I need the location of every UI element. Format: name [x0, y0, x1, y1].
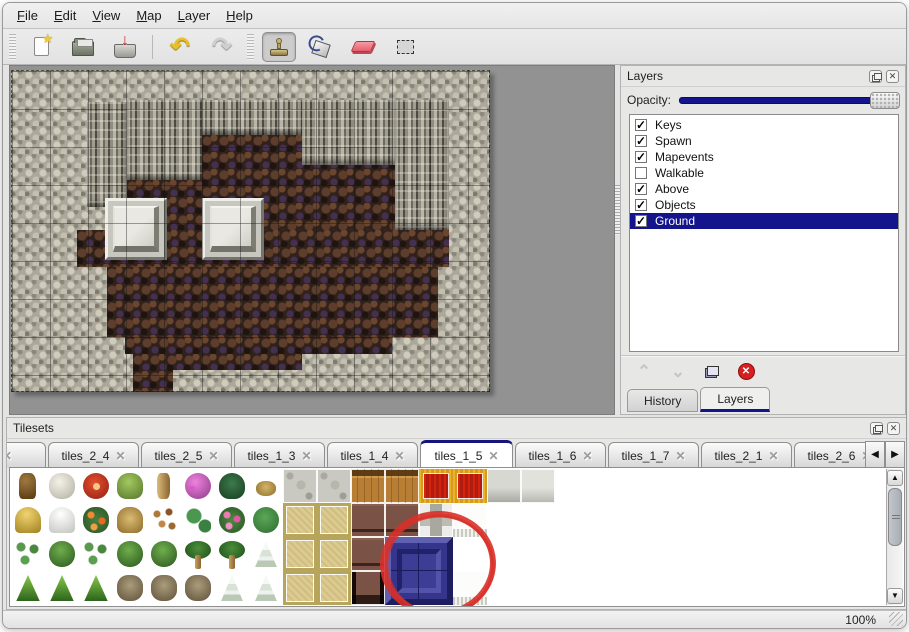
layer-row-walkable[interactable]: Walkable	[630, 165, 898, 181]
bush-sprite-icon	[151, 541, 177, 567]
layer-name: Objects	[655, 198, 696, 212]
tile-sprouts[interactable]	[79, 537, 113, 571]
scrollbar-thumb[interactable]	[888, 488, 902, 546]
layers-dock-titlebar: Layers ✕	[621, 66, 905, 87]
tile-white-fringe[interactable]	[453, 571, 487, 605]
tile-lilypad2[interactable]	[249, 503, 283, 537]
menu-edit[interactable]: Edit	[46, 4, 84, 27]
tile-stone2[interactable]	[317, 469, 351, 503]
sprouts-sprite-icon	[15, 541, 41, 567]
tileset-tab-tiles_2_4[interactable]: tiles_2_4✕	[48, 442, 139, 468]
selection-icon	[397, 40, 414, 54]
tab-close-icon[interactable]: ✕	[582, 449, 592, 463]
opacity-row: Opacity:	[621, 90, 905, 110]
tileset-tab-3[interactable]: 3✕	[7, 442, 46, 468]
tilesets-dock-titlebar: Tilesets ✕	[7, 418, 906, 439]
layers-dock-title: Layers	[627, 69, 663, 83]
tile-khaki[interactable]	[283, 537, 317, 571]
bare-tree-sprite-icon	[185, 575, 211, 601]
stump-sprite-icon	[117, 473, 143, 499]
tile-table[interactable]	[351, 537, 385, 571]
tile-bare-tree[interactable]	[181, 571, 215, 605]
layer-checkbox[interactable]: ✓	[635, 215, 647, 227]
tile-wood[interactable]	[385, 469, 419, 503]
layer-row-mapevents[interactable]: ✓Mapevents	[630, 149, 898, 165]
map-viewport[interactable]	[9, 65, 615, 415]
opacity-label: Opacity:	[627, 93, 671, 107]
layer-name: Walkable	[655, 166, 704, 180]
arrow-up-icon: ▲	[891, 473, 899, 482]
open-button[interactable]	[66, 32, 100, 62]
layer-name: Keys	[655, 118, 682, 132]
undo-button[interactable]: ↶	[163, 32, 197, 62]
new-file-icon: ★	[34, 37, 49, 56]
tile-carpet[interactable]	[453, 469, 487, 503]
bush-sprite-icon	[117, 541, 143, 567]
tile-pine-snow[interactable]	[249, 537, 283, 571]
status-bar: 100%	[3, 610, 906, 628]
tab-close-icon[interactable]: ✕	[301, 449, 311, 463]
tileset-scrollbar[interactable]: ▲ ▼	[886, 469, 903, 605]
pine-snow-sprite-icon	[253, 575, 279, 601]
tabs-scroll-right-button[interactable]: ▶	[885, 441, 905, 468]
dock-tabs: HistoryLayers	[627, 387, 772, 412]
redo-button[interactable]: ↷	[205, 32, 239, 62]
layer-row-ground[interactable]: ✓Ground	[630, 213, 898, 229]
arrow-left-icon: ◀	[871, 449, 879, 460]
tile-table2[interactable]	[351, 571, 385, 605]
tab-close-icon[interactable]: ✕	[394, 449, 404, 463]
toolbar-separator	[152, 35, 153, 59]
map-document[interactable]	[11, 70, 490, 392]
tile-cone-tree[interactable]	[79, 571, 113, 605]
tileset-tab-tiles_2_1[interactable]: tiles_2_1✕	[701, 442, 792, 468]
app-window: FileEditViewMapLayerHelp ★ ↓ ↶ ↷	[2, 2, 907, 629]
layer-checkbox[interactable]: ✓	[635, 199, 647, 211]
layer-checkbox[interactable]: ✓	[635, 183, 647, 195]
chevron-up-icon: ⌃	[637, 367, 651, 377]
tile-flowers-orange[interactable]	[79, 503, 113, 537]
menu-file[interactable]: File	[9, 4, 46, 27]
bush-sprite-icon	[49, 541, 75, 567]
tile-roses[interactable]	[215, 503, 249, 537]
layer-actions-row: ⌃ ⌄ ✕	[621, 356, 905, 386]
tile-stone[interactable]	[283, 469, 317, 503]
tile-deadtree[interactable]	[45, 469, 79, 503]
bare-tree-sprite-icon	[117, 575, 143, 601]
undo-icon: ↶	[170, 36, 190, 58]
tile-grass-dry[interactable]	[113, 503, 147, 537]
tile-trunk-tall[interactable]	[147, 469, 181, 503]
plant-small-sprite-icon	[256, 481, 276, 496]
stamp-tool-button[interactable]	[262, 32, 296, 62]
trunk-tall-sprite-icon	[157, 473, 170, 499]
arrow-down-icon: ▼	[891, 591, 899, 600]
deadtree-sprite-icon	[49, 473, 75, 499]
toolbar-drag-handle[interactable]	[9, 34, 16, 60]
layer-row-spawn[interactable]: ✓Spawn	[630, 133, 898, 149]
tile-khaki[interactable]	[283, 503, 317, 537]
tab-label: tiles_1_3	[247, 449, 295, 463]
tile-bare-tree[interactable]	[147, 571, 181, 605]
layer-row-objects[interactable]: ✓Objects	[630, 197, 898, 213]
select-tool-button[interactable]	[388, 32, 422, 62]
opacity-slider[interactable]	[679, 97, 899, 104]
flower-red-sprite-icon	[83, 473, 109, 499]
trunk-sprite-icon	[19, 473, 36, 499]
tile-flower-red[interactable]	[79, 469, 113, 503]
hay-sprite-icon	[15, 507, 41, 533]
close-panel-icon[interactable]: ✕	[886, 70, 899, 83]
tile-bush-pink[interactable]	[181, 469, 215, 503]
tile-lilypad[interactable]	[181, 503, 215, 537]
tile-bush[interactable]	[45, 537, 79, 571]
arrow-right-icon: ▶	[891, 449, 899, 460]
tabs-scroll-left-button[interactable]: ◀	[865, 441, 885, 468]
tile-bush[interactable]	[147, 537, 181, 571]
tab-close-icon[interactable]: ✕	[768, 449, 778, 463]
float-panel-icon[interactable]	[869, 70, 882, 83]
tile-bush[interactable]	[113, 537, 147, 571]
tile-pine-snow[interactable]	[215, 571, 249, 605]
tile-blank[interactable]	[487, 537, 521, 571]
pine-snow-sprite-icon	[253, 541, 279, 567]
resize-grip-icon[interactable]	[889, 612, 903, 626]
flowers-orange-sprite-icon	[83, 507, 109, 533]
tile-cone-tree[interactable]	[45, 571, 79, 605]
snow-mound-sprite-icon	[49, 507, 75, 533]
tile-trunk[interactable]	[11, 469, 45, 503]
tile-khaki[interactable]	[283, 571, 317, 605]
tab-label: tiles_1_4	[340, 449, 388, 463]
map-grid-overlay	[11, 70, 490, 392]
tile-palm[interactable]	[181, 537, 215, 571]
layer-checkbox[interactable]	[635, 167, 647, 179]
tab-label: tiles_1_7	[621, 449, 669, 463]
tilesets-dock: Tilesets ✕ 3✕tiles_2_4✕tiles_2_5✕tiles_1…	[6, 417, 907, 610]
layer-checkbox[interactable]: ✓	[635, 151, 647, 163]
tile-bare-tree[interactable]	[113, 571, 147, 605]
layer-list[interactable]: ✓Keys✓Spawn✓MapeventsWalkable✓Above✓Obje…	[629, 114, 899, 352]
tile-wood[interactable]	[351, 469, 385, 503]
tile-khaki[interactable]	[317, 503, 351, 537]
layers-dock: Layers ✕ Opacity: ✓Keys✓Spawn✓MapeventsW…	[620, 65, 906, 415]
tab-close-icon[interactable]: ✕	[488, 449, 498, 463]
tab-close-icon[interactable]: ✕	[7, 449, 12, 463]
tile-blank[interactable]	[487, 503, 521, 537]
tile-hay[interactable]	[11, 503, 45, 537]
tile-blank[interactable]	[487, 571, 521, 605]
fill-tool-button[interactable]	[304, 32, 338, 62]
tile-white-fringe[interactable]	[453, 503, 487, 537]
tab-label: tiles_2_5	[154, 449, 202, 463]
layer-row-above[interactable]: ✓Above	[630, 181, 898, 197]
tab-label: tiles_1_6	[528, 449, 576, 463]
grass-dry-sprite-icon	[117, 507, 143, 533]
tile-palm[interactable]	[215, 537, 249, 571]
selected-tile[interactable]	[385, 537, 453, 605]
tileset-tab-tiles_1_3[interactable]: tiles_1_3✕	[234, 442, 325, 468]
zoom-level: 100%	[845, 613, 876, 627]
tab-label: tiles_2_1	[714, 449, 762, 463]
tileset-tab-tiles_2_5[interactable]: tiles_2_5✕	[141, 442, 232, 468]
lilypad2-sprite-icon	[253, 507, 279, 533]
move-layer-up-button[interactable]: ⌃	[633, 361, 655, 383]
tilesets-dock-title: Tilesets	[13, 421, 54, 435]
tile-slab[interactable]	[487, 469, 521, 503]
open-folder-icon	[72, 41, 94, 56]
opacity-slider-handle[interactable]	[870, 92, 900, 109]
palm-sprite-icon	[219, 541, 245, 559]
bare-tree-sprite-icon	[151, 575, 177, 601]
dock-tab-history[interactable]: History	[627, 389, 698, 412]
menu-layer[interactable]: Layer	[170, 4, 219, 27]
eraser-icon	[351, 41, 376, 52]
tab-close-icon[interactable]: ✕	[115, 449, 125, 463]
bush-pink-sprite-icon	[185, 473, 211, 499]
layer-checkbox[interactable]: ✓	[635, 135, 647, 147]
menu-bar: FileEditViewMapLayerHelp	[3, 3, 906, 29]
scroll-up-button[interactable]: ▲	[887, 470, 903, 486]
save-button[interactable]: ↓	[108, 32, 142, 62]
tile-table[interactable]	[385, 503, 419, 537]
sprouts-sprite-icon	[83, 541, 109, 567]
tile-pillar[interactable]	[419, 503, 453, 537]
tile-fern[interactable]	[215, 469, 249, 503]
palm-sprite-icon	[185, 541, 211, 559]
tile-carpet[interactable]	[419, 469, 453, 503]
tab-label: tiles_2_6	[807, 449, 855, 463]
tile-blank[interactable]	[521, 537, 555, 571]
tile-blank[interactable]	[521, 503, 555, 537]
cone-tree-sprite-icon	[15, 575, 41, 601]
tile-plant-small[interactable]	[249, 469, 283, 503]
duplicate-layer-button[interactable]	[701, 361, 723, 383]
cone-tree-sprite-icon	[49, 575, 75, 601]
tile-blank[interactable]	[521, 571, 555, 605]
tileset-tab-bar: 3✕tiles_2_4✕tiles_2_5✕tiles_1_3✕tiles_1_…	[7, 438, 906, 468]
menu-map[interactable]: Map	[128, 4, 169, 27]
tile-stump[interactable]	[113, 469, 147, 503]
tab-close-icon[interactable]: ✕	[675, 449, 685, 463]
lilypad-sprite-icon	[185, 507, 211, 533]
menu-help[interactable]: Help	[218, 4, 261, 27]
tile-khaki[interactable]	[317, 571, 351, 605]
close-panel-icon[interactable]: ✕	[887, 422, 900, 435]
tileset-tab-tiles_1_5[interactable]: tiles_1_5✕	[420, 440, 513, 468]
layer-name: Ground	[655, 214, 695, 228]
fern-sprite-icon	[219, 473, 245, 499]
tile-leaves[interactable]	[147, 503, 181, 537]
tile-blank[interactable]	[453, 537, 487, 571]
eraser-tool-button[interactable]	[346, 32, 380, 62]
pine-snow-sprite-icon	[219, 575, 245, 601]
tile-pine-snow[interactable]	[249, 571, 283, 605]
tab-close-icon[interactable]: ✕	[208, 449, 218, 463]
cone-tree-sprite-icon	[83, 575, 109, 601]
float-panel-icon[interactable]	[870, 422, 883, 435]
tileset-tab-tiles_1_4[interactable]: tiles_1_4✕	[327, 442, 418, 468]
save-icon: ↓	[114, 44, 136, 58]
tab-label: tiles_1_5	[434, 449, 482, 463]
paint-bucket-icon	[311, 39, 331, 57]
tile-khaki[interactable]	[317, 537, 351, 571]
toolbar-drag-handle-2[interactable]	[247, 34, 254, 60]
stamp-icon	[270, 38, 288, 56]
delete-icon: ✕	[738, 363, 755, 380]
toolbar: ★ ↓ ↶ ↷	[3, 29, 906, 65]
tab-label: tiles_2_4	[61, 449, 109, 463]
delete-layer-button[interactable]: ✕	[735, 361, 757, 383]
tileset-content[interactable]: ▲ ▼	[9, 467, 905, 607]
layer-name: Mapevents	[655, 150, 714, 164]
layer-checkbox[interactable]: ✓	[635, 119, 647, 131]
move-layer-down-button[interactable]: ⌄	[667, 361, 689, 383]
tile-snow-mound[interactable]	[45, 503, 79, 537]
menu-view[interactable]: View	[84, 4, 128, 27]
layer-row-keys[interactable]: ✓Keys	[630, 117, 898, 133]
tileset-tab-tiles_1_7[interactable]: tiles_1_7✕	[608, 442, 699, 468]
chevron-down-icon: ⌄	[671, 367, 685, 377]
layer-name: Spawn	[655, 134, 692, 148]
layer-name: Above	[655, 182, 689, 196]
roses-sprite-icon	[219, 507, 245, 533]
new-file-button[interactable]: ★	[24, 32, 58, 62]
tile-slab2[interactable]	[521, 469, 555, 503]
tile-sprouts[interactable]	[11, 537, 45, 571]
leaves-sprite-icon	[151, 507, 177, 533]
redo-icon: ↷	[212, 36, 232, 58]
scroll-down-button[interactable]: ▼	[887, 588, 903, 604]
dock-tab-layers[interactable]: Layers	[700, 387, 770, 412]
tile-cone-tree[interactable]	[11, 571, 45, 605]
tileset-tab-tiles_1_6[interactable]: tiles_1_6✕	[515, 442, 606, 468]
duplicate-icon	[705, 366, 719, 378]
tile-table[interactable]	[351, 503, 385, 537]
